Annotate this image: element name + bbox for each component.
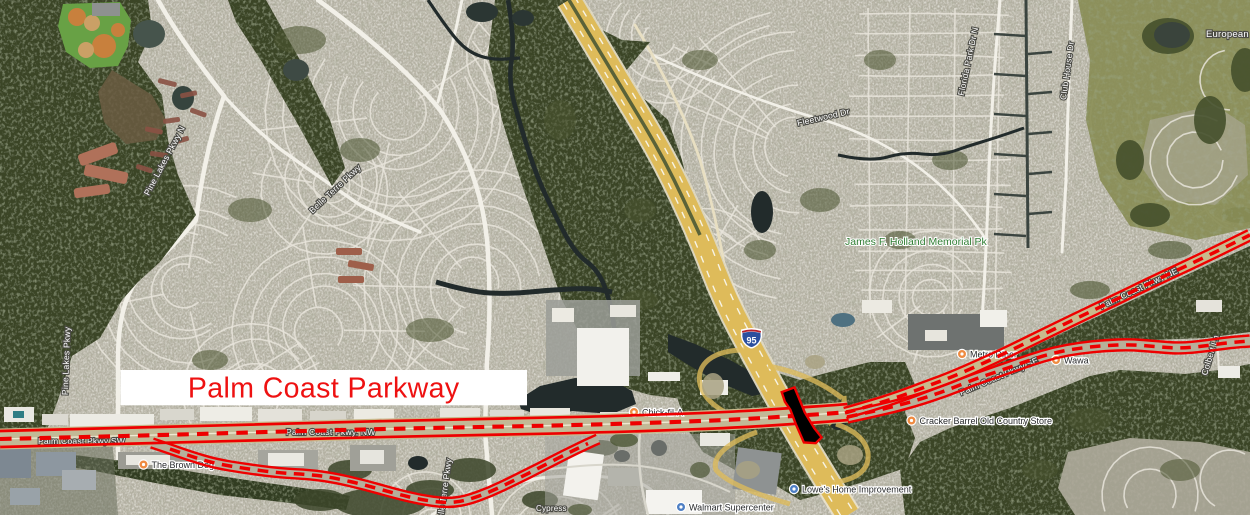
svg-text:Wawa: Wawa — [1064, 356, 1089, 366]
svg-text:James F. Holland Memorial Pk: James F. Holland Memorial Pk — [845, 236, 988, 248]
svg-text:Walmart Supercenter: Walmart Supercenter — [689, 503, 774, 513]
svg-text:Lowe's Home Improvement: Lowe's Home Improvement — [802, 485, 912, 495]
svg-text:Cracker Barrel Old Country Sto: Cracker Barrel Old Country Store — [920, 416, 1053, 426]
svg-text:Palm Coast Parkway: Palm Coast Parkway — [188, 373, 460, 405]
svg-text:Metro Diner: Metro Diner — [970, 350, 1017, 360]
svg-text:95: 95 — [746, 336, 756, 346]
svg-text:European: European — [1206, 29, 1249, 40]
svg-text:Cypress: Cypress — [536, 504, 567, 513]
